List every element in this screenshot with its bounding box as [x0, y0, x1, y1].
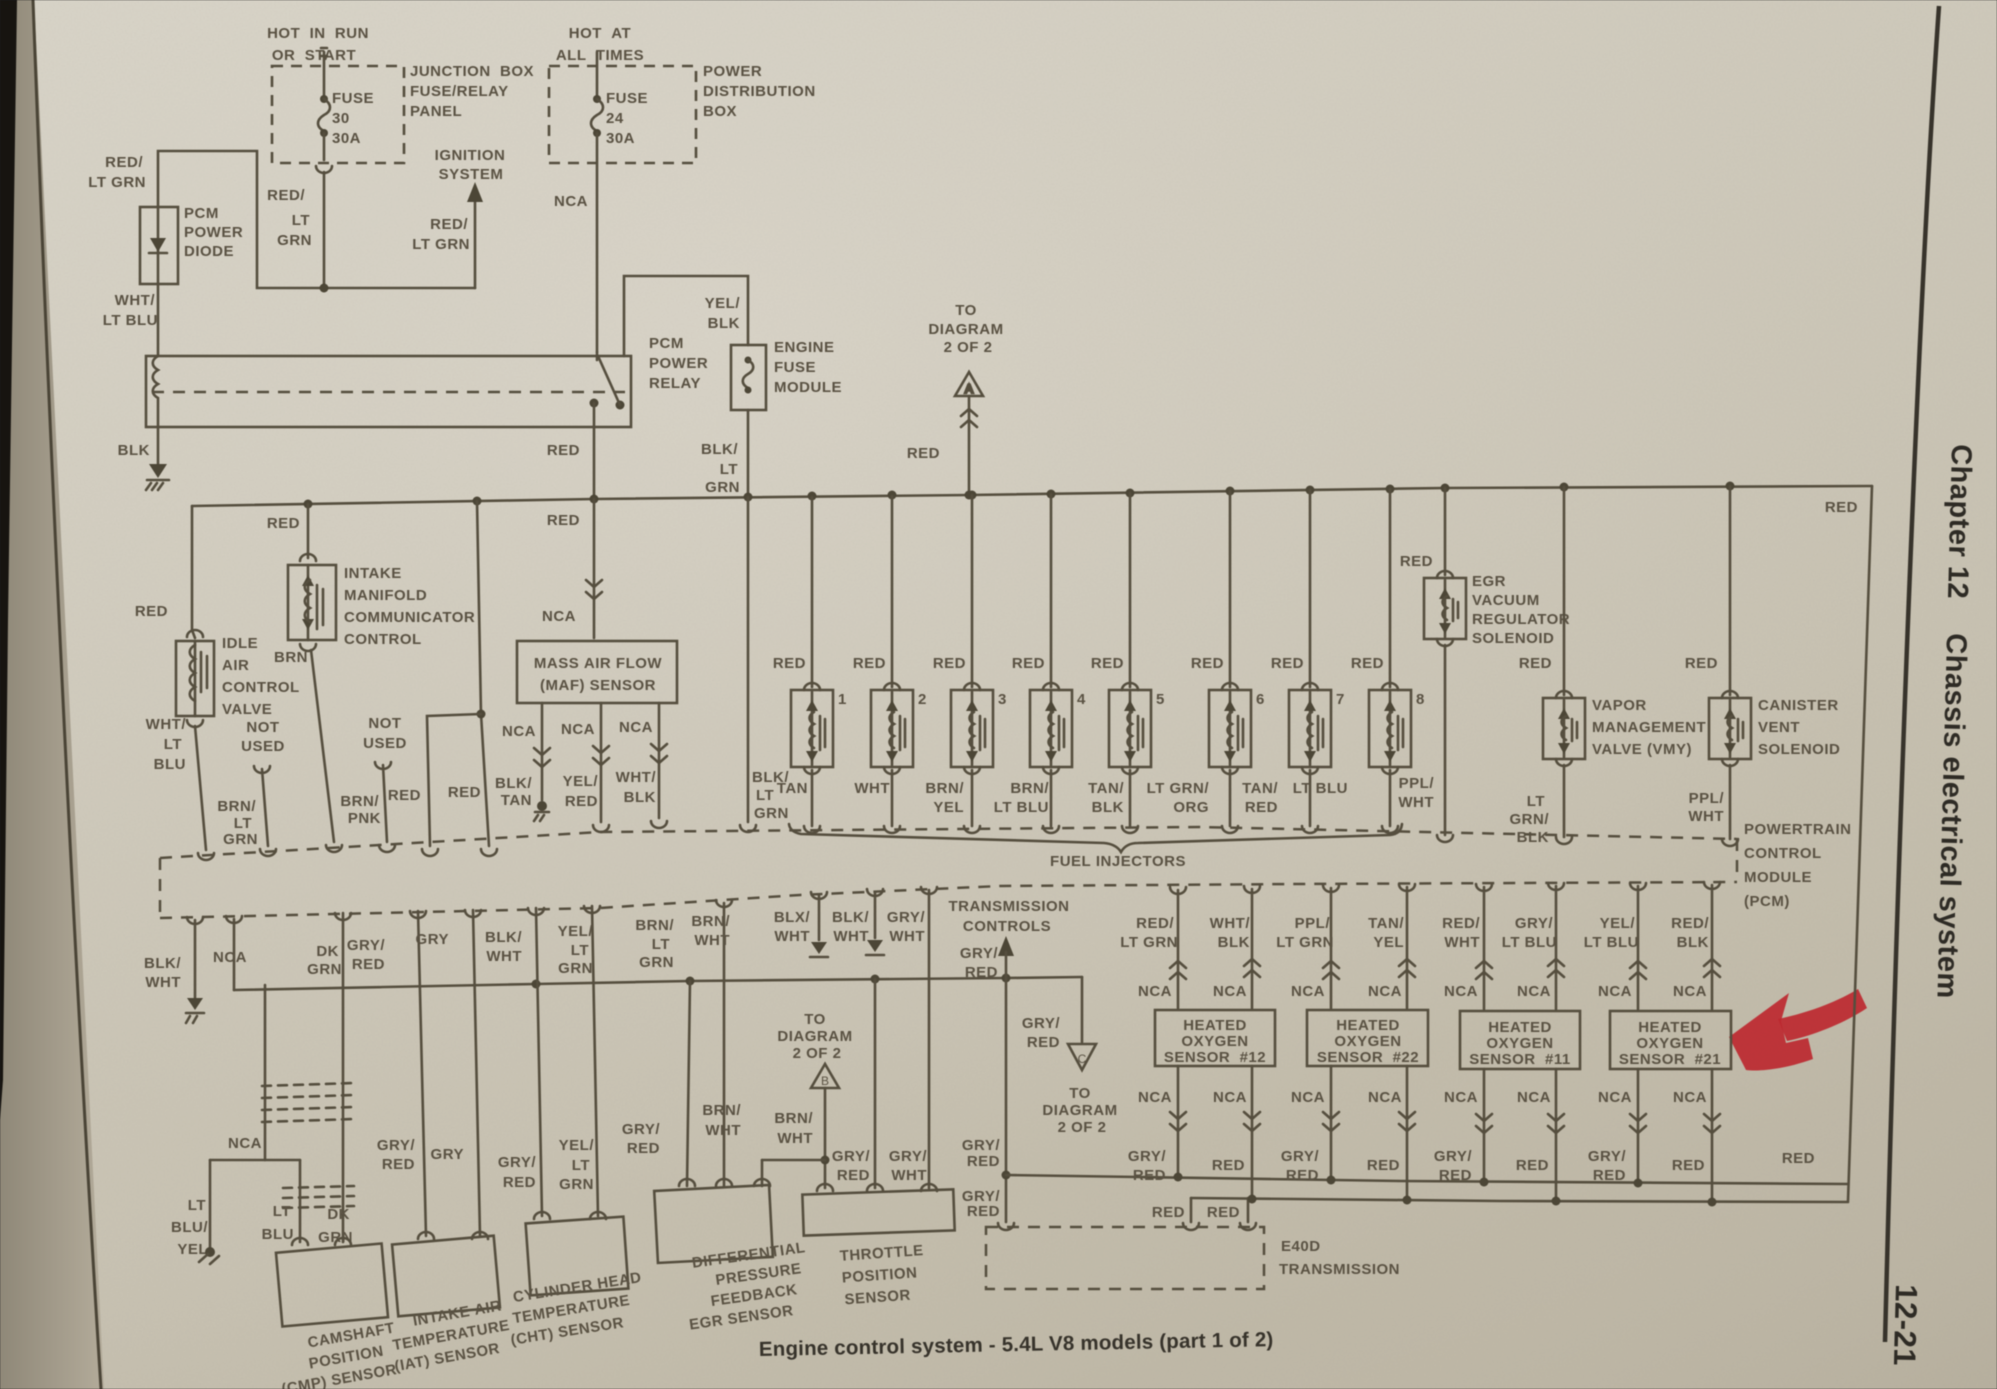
svg-text:NCA: NCA	[1368, 983, 1402, 1000]
svg-text:GRY/: GRY/	[1281, 1148, 1319, 1165]
svg-text:HEATED: HEATED	[1638, 1019, 1702, 1036]
svg-text:RED: RED	[565, 793, 598, 810]
svg-text:RED: RED	[627, 1140, 660, 1157]
svg-text:BLK: BLK	[1218, 934, 1250, 951]
svg-text:24: 24	[606, 110, 624, 127]
svg-text:30A: 30A	[606, 130, 635, 147]
svg-text:POWER: POWER	[649, 355, 708, 372]
svg-text:RELAY: RELAY	[649, 375, 701, 392]
svg-text:RED: RED	[1027, 1034, 1060, 1051]
svg-text:BLU/: BLU/	[171, 1219, 208, 1236]
svg-text:WHT: WHT	[705, 1122, 741, 1139]
svg-text:BLU: BLU	[154, 756, 186, 773]
svg-text:YEL/: YEL/	[1600, 915, 1636, 932]
svg-text:GRY/: GRY/	[1022, 1015, 1060, 1032]
svg-text:BLK/: BLK/	[144, 955, 181, 972]
svg-text:FUEL INJECTORS: FUEL INJECTORS	[1050, 853, 1186, 870]
svg-text:RED: RED	[933, 655, 966, 672]
svg-text:2 OF 2: 2 OF 2	[944, 339, 993, 356]
svg-text:RED: RED	[1271, 655, 1304, 672]
svg-text:WHT: WHT	[889, 928, 925, 945]
svg-text:DIODE: DIODE	[184, 243, 234, 260]
svg-text:NCA: NCA	[1444, 1089, 1478, 1106]
svg-text:12-21: 12-21	[1887, 1284, 1924, 1367]
svg-text:GRY/: GRY/	[1588, 1148, 1626, 1165]
svg-text:LT GRN: LT GRN	[1276, 934, 1334, 951]
svg-text:BRN: BRN	[274, 649, 308, 666]
svg-text:NOT: NOT	[368, 715, 401, 732]
svg-text:GRY/: GRY/	[377, 1137, 415, 1154]
svg-text:GRY/: GRY/	[622, 1121, 660, 1138]
svg-text:LT GRN: LT GRN	[1120, 934, 1178, 951]
svg-text:JUNCTION BOX: JUNCTION BOX	[410, 63, 534, 80]
svg-text:DIAGRAM: DIAGRAM	[928, 321, 1003, 338]
svg-text:GRN: GRN	[307, 961, 342, 978]
svg-text:30: 30	[332, 110, 350, 127]
svg-text:NCA: NCA	[1598, 983, 1632, 1000]
svg-text:SENSOR #11: SENSOR #11	[1469, 1051, 1570, 1068]
svg-text:LT BLU: LT BLU	[103, 312, 158, 329]
svg-text:6: 6	[1256, 691, 1265, 708]
svg-text:SENSOR #12: SENSOR #12	[1164, 1049, 1266, 1066]
svg-text:USED: USED	[363, 735, 407, 752]
svg-text:PPL/: PPL/	[1689, 790, 1725, 807]
svg-text:TO: TO	[955, 302, 977, 319]
svg-text:WHT: WHT	[833, 928, 869, 945]
svg-text:BLK: BLK	[1677, 934, 1709, 951]
svg-text:VENT: VENT	[1758, 719, 1800, 736]
svg-text:NCA: NCA	[1291, 983, 1325, 1000]
svg-text:MANAGEMENT: MANAGEMENT	[1592, 719, 1706, 736]
svg-text:WHT: WHT	[777, 1130, 813, 1147]
svg-text:CANISTER: CANISTER	[1758, 697, 1839, 714]
svg-text:HOT AT: HOT AT	[569, 25, 631, 42]
svg-text:BLK: BLK	[118, 442, 150, 459]
svg-text:RED: RED	[448, 784, 481, 801]
svg-text:RED: RED	[967, 1203, 1000, 1220]
svg-text:RED: RED	[352, 956, 385, 973]
svg-text:3: 3	[998, 691, 1007, 708]
svg-text:BLU: BLU	[262, 1226, 294, 1243]
svg-text:ENGINE: ENGINE	[774, 339, 835, 356]
svg-text:RED/: RED/	[105, 154, 143, 171]
svg-text:GRN: GRN	[705, 479, 740, 496]
svg-text:GRY/: GRY/	[498, 1154, 536, 1171]
svg-text:PNK: PNK	[348, 810, 381, 827]
svg-text:PCM: PCM	[649, 335, 684, 352]
svg-text:LT: LT	[292, 212, 310, 229]
svg-text:GRN: GRN	[559, 1176, 594, 1193]
svg-text:PCM: PCM	[184, 205, 219, 222]
svg-text:NCA: NCA	[228, 1135, 262, 1152]
svg-text:TAN: TAN	[777, 780, 808, 797]
svg-text:GRY/: GRY/	[347, 937, 385, 954]
svg-text:GRN: GRN	[558, 960, 593, 977]
svg-text:WHT: WHT	[1688, 808, 1724, 825]
svg-text:NCA: NCA	[1213, 1089, 1247, 1106]
svg-text:7: 7	[1336, 691, 1345, 708]
svg-text:LT BLU: LT BLU	[1502, 934, 1557, 951]
svg-text:RED: RED	[1672, 1157, 1705, 1174]
svg-text:GRN: GRN	[223, 831, 258, 848]
svg-text:YEL: YEL	[177, 1241, 208, 1258]
svg-text:RED: RED	[135, 603, 168, 620]
svg-text:RED/: RED/	[430, 216, 468, 233]
svg-text:HEATED: HEATED	[1336, 1017, 1400, 1034]
svg-text:2 OF 2: 2 OF 2	[793, 1045, 842, 1062]
svg-text:CONTROL: CONTROL	[1744, 845, 1822, 862]
svg-text:RED: RED	[837, 1167, 870, 1184]
svg-text:BLK/: BLK/	[832, 909, 869, 926]
svg-text:RED: RED	[1212, 1157, 1245, 1174]
svg-text:MODULE: MODULE	[774, 379, 842, 396]
svg-text:WHT: WHT	[1444, 934, 1480, 951]
svg-text:WHT: WHT	[1398, 794, 1434, 811]
svg-text:RED: RED	[547, 512, 580, 529]
svg-text:RED/: RED/	[267, 187, 305, 204]
svg-text:NCA: NCA	[1138, 983, 1172, 1000]
svg-text:YEL: YEL	[1373, 934, 1404, 951]
svg-text:WHT: WHT	[145, 974, 181, 991]
svg-text:WHT/: WHT/	[146, 716, 187, 733]
svg-text:HOT IN RUN: HOT IN RUN	[267, 25, 369, 42]
svg-text:FUSE: FUSE	[332, 90, 374, 107]
svg-text:A: A	[965, 382, 973, 396]
svg-text:PPL/: PPL/	[1399, 775, 1435, 792]
svg-text:E40D: E40D	[1281, 1238, 1321, 1255]
svg-text:RED: RED	[1351, 655, 1384, 672]
svg-text:TAN/: TAN/	[1242, 780, 1278, 797]
svg-text:RED: RED	[1091, 655, 1124, 672]
svg-text:RED: RED	[1191, 655, 1224, 672]
svg-text:BRN/: BRN/	[774, 1110, 813, 1127]
svg-text:BRN/: BRN/	[635, 917, 674, 934]
svg-text:CONTROL: CONTROL	[344, 631, 422, 648]
svg-text:BLX/: BLX/	[774, 909, 811, 926]
svg-text:LT GRN: LT GRN	[412, 236, 470, 253]
svg-text:OXYGEN: OXYGEN	[1486, 1035, 1553, 1052]
svg-text:PPL/: PPL/	[1295, 915, 1331, 932]
svg-text:LT: LT	[273, 1203, 291, 1220]
svg-text:LT: LT	[164, 736, 182, 753]
svg-text:DISTRIBUTION: DISTRIBUTION	[703, 83, 816, 100]
svg-text:NCA: NCA	[1517, 983, 1551, 1000]
svg-text:TAN/: TAN/	[1368, 915, 1404, 932]
svg-text:RED: RED	[907, 445, 940, 462]
svg-text:GRY/: GRY/	[1515, 915, 1553, 932]
svg-text:OXYGEN: OXYGEN	[1181, 1033, 1248, 1050]
svg-text:RED: RED	[773, 655, 806, 672]
svg-text:LT: LT	[572, 1157, 590, 1174]
svg-text:LT BLU: LT BLU	[1293, 780, 1348, 797]
svg-text:CONTROLS: CONTROLS	[963, 918, 1051, 935]
svg-text:VACUUM: VACUUM	[1472, 592, 1540, 609]
svg-text:DIAGRAM: DIAGRAM	[777, 1028, 852, 1045]
svg-text:NCA: NCA	[502, 723, 536, 740]
svg-text:GRY/: GRY/	[887, 909, 925, 926]
svg-text:LT: LT	[571, 942, 589, 959]
svg-text:INTAKE: INTAKE	[344, 565, 402, 582]
svg-text:(PCM): (PCM)	[1744, 893, 1790, 910]
svg-text:2: 2	[918, 691, 927, 708]
svg-text:SOLENOID: SOLENOID	[1472, 630, 1554, 647]
svg-text:RED/: RED/	[1136, 915, 1174, 932]
svg-text:EGR: EGR	[1472, 573, 1506, 590]
svg-text:GRN: GRN	[277, 232, 312, 249]
svg-text:SYSTEM: SYSTEM	[439, 166, 504, 183]
svg-text:RED: RED	[1133, 1167, 1166, 1184]
svg-text:NCA: NCA	[1598, 1089, 1632, 1106]
svg-text:NCA: NCA	[554, 193, 588, 210]
svg-text:GRY/: GRY/	[962, 1137, 1000, 1154]
svg-text:GRY/: GRY/	[960, 945, 998, 962]
svg-text:RED: RED	[965, 964, 998, 981]
svg-text:NCA: NCA	[213, 949, 247, 966]
svg-text:DK: DK	[327, 1206, 350, 1223]
svg-text:1: 1	[838, 691, 847, 708]
svg-text:NCA: NCA	[542, 608, 576, 625]
svg-text:BLK: BLK	[1517, 829, 1549, 846]
svg-text:GRY/: GRY/	[832, 1148, 870, 1165]
svg-text:WHT: WHT	[774, 928, 810, 945]
svg-text:RED: RED	[1685, 655, 1718, 672]
svg-text:WHT: WHT	[486, 948, 522, 965]
svg-text:LT GRN: LT GRN	[88, 174, 146, 191]
svg-text:TO: TO	[804, 1011, 826, 1028]
svg-text:B: B	[821, 1074, 829, 1088]
svg-text:ORG: ORG	[1173, 799, 1209, 816]
svg-text:MODULE: MODULE	[1744, 869, 1812, 886]
svg-text:NCA: NCA	[1213, 983, 1247, 1000]
svg-text:NCA: NCA	[1138, 1089, 1172, 1106]
svg-text:30A: 30A	[332, 130, 361, 147]
svg-text:FUSE: FUSE	[606, 90, 648, 107]
svg-text:RED: RED	[1516, 1157, 1549, 1174]
svg-text:BRN/: BRN/	[340, 793, 379, 810]
svg-text:BLK: BLK	[1092, 799, 1124, 816]
svg-text:NCA: NCA	[619, 719, 653, 736]
svg-text:POWER: POWER	[703, 63, 762, 80]
svg-text:BRN/: BRN/	[691, 913, 730, 930]
svg-text:PANEL: PANEL	[410, 103, 462, 120]
svg-text:BLK: BLK	[624, 789, 656, 806]
svg-text:RED: RED	[1012, 655, 1045, 672]
svg-text:LT BLU: LT BLU	[994, 799, 1049, 816]
svg-text:WHT/: WHT/	[115, 292, 156, 309]
svg-text:MASS AIR FLOW: MASS AIR FLOW	[534, 655, 662, 672]
svg-text:VAPOR: VAPOR	[1592, 697, 1647, 714]
svg-text:RED/: RED/	[1442, 915, 1480, 932]
svg-text:POWER: POWER	[184, 224, 243, 241]
svg-text:HEATED: HEATED	[1488, 1019, 1552, 1036]
svg-text:BLK: BLK	[708, 315, 740, 332]
svg-text:YEL/: YEL/	[558, 923, 594, 940]
svg-text:OXYGEN: OXYGEN	[1636, 1035, 1703, 1052]
svg-text:DIAGRAM: DIAGRAM	[1042, 1102, 1117, 1119]
svg-text:IGNITION: IGNITION	[435, 147, 506, 164]
svg-text:BRN/: BRN/	[217, 798, 256, 815]
svg-text:OXYGEN: OXYGEN	[1334, 1033, 1401, 1050]
svg-text:YEL: YEL	[933, 799, 964, 816]
svg-text:WHT/: WHT/	[1210, 915, 1251, 932]
svg-text:RED: RED	[388, 787, 421, 804]
svg-text:GRY/: GRY/	[889, 1148, 927, 1165]
svg-text:RED: RED	[1207, 1204, 1240, 1221]
svg-text:BLK/: BLK/	[485, 929, 522, 946]
svg-text:NCA: NCA	[1673, 1089, 1707, 1106]
svg-text:COMMUNICATOR: COMMUNICATOR	[344, 609, 475, 626]
svg-text:RED: RED	[1152, 1204, 1185, 1221]
svg-text:TRANSMISSION: TRANSMISSION	[1279, 1261, 1400, 1278]
svg-text:(MAF) SENSOR: (MAF) SENSOR	[540, 677, 656, 694]
svg-text:RED: RED	[1286, 1167, 1319, 1184]
svg-text:NCA: NCA	[1517, 1089, 1551, 1106]
svg-text:BLK/: BLK/	[495, 775, 532, 792]
svg-text:LT: LT	[652, 936, 670, 953]
svg-text:OR START: OR START	[272, 47, 356, 64]
svg-text:GRN/: GRN/	[1510, 811, 1550, 828]
svg-text:RED: RED	[1400, 553, 1433, 570]
svg-text:2 OF 2: 2 OF 2	[1058, 1119, 1107, 1136]
svg-text:BRN/: BRN/	[1010, 780, 1049, 797]
svg-text:LT: LT	[188, 1197, 206, 1214]
svg-text:TRANSMISSION: TRANSMISSION	[948, 898, 1069, 915]
svg-text:FUSE: FUSE	[774, 359, 816, 376]
svg-text:RED: RED	[1519, 655, 1552, 672]
svg-text:YEL/: YEL/	[559, 1137, 595, 1154]
svg-text:DK: DK	[316, 943, 339, 960]
svg-text:5: 5	[1156, 691, 1165, 708]
svg-text:RED: RED	[1593, 1167, 1626, 1184]
svg-text:CONTROL: CONTROL	[222, 679, 300, 696]
svg-text:RED: RED	[382, 1156, 415, 1173]
svg-text:YEL/: YEL/	[563, 773, 599, 790]
svg-text:WHT: WHT	[891, 1167, 927, 1184]
svg-text:FUSE/RELAY: FUSE/RELAY	[410, 83, 509, 100]
svg-text:AIR: AIR	[222, 657, 249, 674]
svg-text:LT: LT	[756, 787, 774, 804]
svg-text:TO: TO	[1069, 1085, 1091, 1102]
svg-text:TAN: TAN	[501, 792, 532, 809]
svg-text:GRN: GRN	[639, 954, 674, 971]
svg-text:MANIFOLD: MANIFOLD	[344, 587, 427, 604]
svg-text:GRY/: GRY/	[1434, 1148, 1472, 1165]
svg-text:RED: RED	[1367, 1157, 1400, 1174]
svg-text:8: 8	[1416, 691, 1425, 708]
svg-text:RED: RED	[267, 515, 300, 532]
svg-text:SENSOR #21: SENSOR #21	[1619, 1051, 1721, 1068]
svg-text:4: 4	[1077, 691, 1086, 708]
svg-text:NCA: NCA	[561, 721, 595, 738]
svg-text:BRN/: BRN/	[702, 1102, 741, 1119]
svg-text:C: C	[1078, 1052, 1087, 1066]
svg-text:USED: USED	[241, 738, 285, 755]
svg-text:ALL TIMES: ALL TIMES	[556, 47, 644, 64]
svg-text:WHT/: WHT/	[616, 769, 657, 786]
svg-text:GRY: GRY	[416, 931, 449, 948]
svg-text:LT: LT	[234, 815, 252, 832]
svg-text:RED: RED	[967, 1153, 1000, 1170]
svg-text:RED: RED	[853, 655, 886, 672]
svg-text:POWERTRAIN: POWERTRAIN	[1744, 821, 1852, 838]
svg-text:NCA: NCA	[1444, 983, 1478, 1000]
svg-text:SENSOR #22: SENSOR #22	[1317, 1049, 1419, 1066]
svg-text:NOT: NOT	[246, 719, 279, 736]
svg-text:LT GRN/: LT GRN/	[1147, 780, 1210, 797]
svg-text:RED: RED	[1439, 1167, 1472, 1184]
svg-text:BOX: BOX	[703, 103, 737, 120]
svg-text:NCA: NCA	[1673, 983, 1707, 1000]
svg-text:GRN: GRN	[754, 805, 789, 822]
svg-text:GRY: GRY	[431, 1146, 464, 1163]
svg-text:GRY/: GRY/	[1128, 1148, 1166, 1165]
svg-text:WHT: WHT	[854, 780, 890, 797]
svg-text:TAN/: TAN/	[1088, 780, 1124, 797]
svg-text:WHT: WHT	[694, 932, 730, 949]
svg-text:RED: RED	[1782, 1150, 1815, 1167]
svg-text:RED: RED	[1245, 799, 1278, 816]
svg-text:REGULATOR: REGULATOR	[1472, 611, 1570, 628]
svg-text:NCA: NCA	[1291, 1089, 1325, 1106]
svg-text:YEL/: YEL/	[705, 295, 741, 312]
svg-text:LT: LT	[720, 461, 738, 478]
svg-text:SOLENOID: SOLENOID	[1758, 741, 1840, 758]
svg-text:IDLE: IDLE	[222, 635, 258, 652]
svg-text:VALVE (VMY): VALVE (VMY)	[1592, 741, 1692, 758]
svg-text:RED/: RED/	[1671, 915, 1709, 932]
svg-text:RED: RED	[1825, 499, 1858, 516]
svg-text:RED: RED	[547, 442, 580, 459]
svg-text:VALVE: VALVE	[222, 701, 272, 718]
svg-text:BLK/: BLK/	[701, 441, 738, 458]
svg-text:RED: RED	[503, 1174, 536, 1191]
svg-text:NCA: NCA	[1368, 1089, 1402, 1106]
svg-text:HEATED: HEATED	[1183, 1017, 1247, 1034]
svg-text:BRN/: BRN/	[925, 780, 964, 797]
svg-text:LT BLU: LT BLU	[1584, 934, 1639, 951]
svg-text:LT: LT	[1527, 793, 1545, 810]
